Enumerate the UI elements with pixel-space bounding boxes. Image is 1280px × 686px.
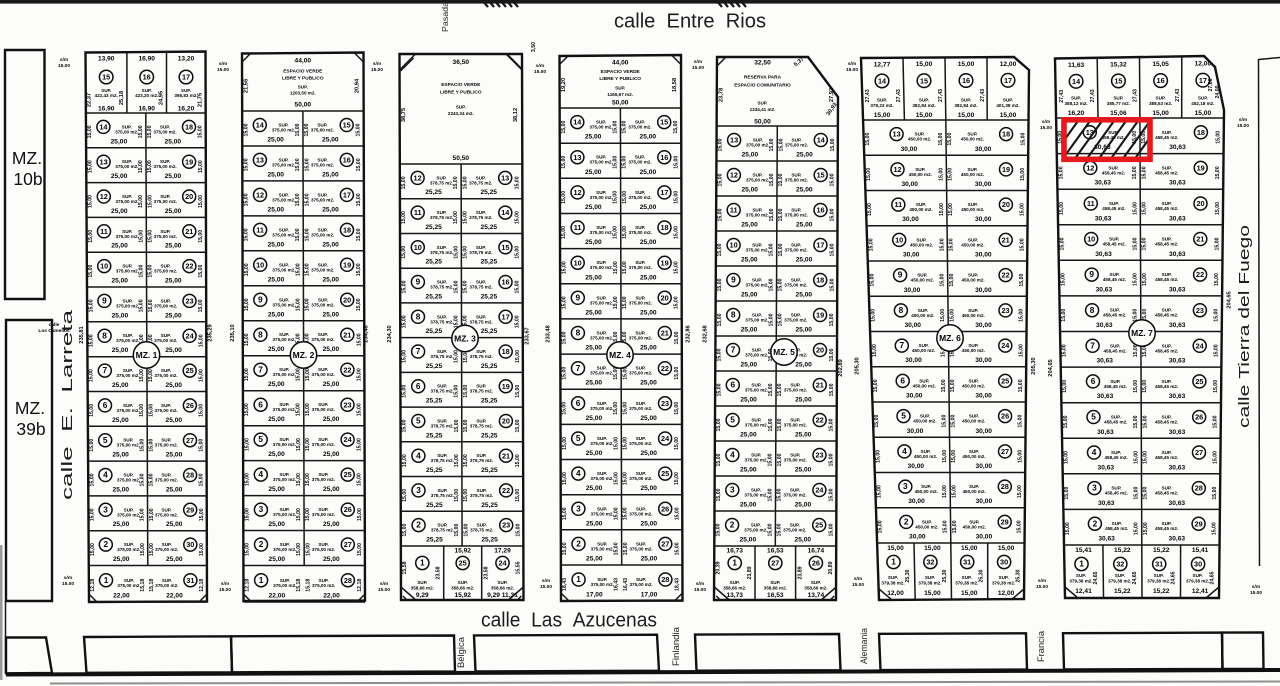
svg-text:SUP.: SUP. <box>919 98 929 103</box>
svg-text:15,92: 15,92 <box>454 592 471 599</box>
svg-text:25,00: 25,00 <box>586 415 603 422</box>
svg-text:17: 17 <box>182 73 190 82</box>
svg-text:375,00 m2.: 375,00 m2. <box>272 197 295 202</box>
svg-text:22,37: 22,37 <box>87 93 93 107</box>
svg-text:15,00: 15,00 <box>1143 486 1149 499</box>
svg-text:15,00: 15,00 <box>916 112 933 119</box>
svg-text:15,00: 15,00 <box>89 473 95 486</box>
svg-text:15,00: 15,00 <box>514 176 520 189</box>
svg-text:12,00: 12,00 <box>1195 61 1212 68</box>
svg-text:16,53: 16,53 <box>767 592 784 599</box>
svg-text:15,00: 15,00 <box>304 158 310 171</box>
svg-text:15,00: 15,00 <box>778 313 784 326</box>
svg-text:15,00: 15,00 <box>1018 414 1024 427</box>
svg-text:22,00: 22,00 <box>269 593 286 600</box>
svg-text:15,00: 15,00 <box>562 507 568 520</box>
svg-text:375,00 m2.: 375,00 m2. <box>272 337 295 342</box>
svg-text:375,00 m2.: 375,00 m2. <box>154 338 177 343</box>
svg-text:15,00: 15,00 <box>88 299 94 312</box>
svg-text:13,74: 13,74 <box>808 592 825 599</box>
svg-text:24,95: 24,95 <box>159 91 165 105</box>
svg-text:28: 28 <box>344 576 352 585</box>
svg-text:378,75 m2.: 378,75 m2. <box>431 458 454 463</box>
svg-text:SUP.: SUP. <box>877 98 887 103</box>
svg-text:27,43: 27,43 <box>938 89 944 102</box>
svg-text:s/m: s/m <box>536 63 544 69</box>
svg-text:25,00: 25,00 <box>741 362 758 369</box>
svg-text:24,65: 24,65 <box>1171 571 1177 584</box>
svg-text:15: 15 <box>102 73 110 82</box>
svg-text:13: 13 <box>573 153 581 162</box>
svg-text:18: 18 <box>660 223 668 232</box>
svg-text:15,00: 15,00 <box>622 261 628 274</box>
svg-text:25,00: 25,00 <box>796 257 813 264</box>
svg-text:25,00: 25,00 <box>640 345 657 352</box>
svg-text:25,25: 25,25 <box>481 363 498 370</box>
svg-text:375,00 m2.: 375,00 m2. <box>784 458 807 463</box>
svg-text:7: 7 <box>576 363 581 373</box>
svg-text:15,00: 15,00 <box>939 238 945 251</box>
svg-text:375,00 m2.: 375,00 m2. <box>311 197 334 202</box>
svg-text:15,00: 15,00 <box>562 402 568 415</box>
svg-text:15,00: 15,00 <box>139 473 145 486</box>
svg-text:15,00: 15,00 <box>199 508 205 521</box>
svg-text:24,00: 24,00 <box>1215 85 1221 98</box>
svg-text:30,63: 30,63 <box>1169 215 1186 222</box>
svg-text:450,00 m2.: 450,00 m2. <box>911 278 934 283</box>
svg-text:11: 11 <box>894 200 902 209</box>
svg-text:458,45 m2.: 458,45 m2. <box>1104 384 1127 389</box>
svg-text:375,00 m2.: 375,00 m2. <box>745 283 768 288</box>
svg-text:ESPACIO COMUNITARIO: ESPACIO COMUNITARIO <box>734 83 791 89</box>
svg-text:LIBRE Y PUBLICO: LIBRE Y PUBLICO <box>282 76 324 82</box>
svg-text:15,00: 15,00 <box>1019 273 1025 286</box>
svg-text:16: 16 <box>501 278 509 287</box>
svg-text:21: 21 <box>816 381 824 390</box>
svg-text:1: 1 <box>891 557 896 567</box>
svg-text:15,00: 15,00 <box>515 523 521 536</box>
svg-text:15,00: 15,00 <box>198 299 204 312</box>
svg-text:375,00 m2.: 375,00 m2. <box>311 128 334 133</box>
svg-text:378,75 m2.: 378,75 m2. <box>430 319 453 324</box>
svg-text:378,75 m2.: 378,75 m2. <box>431 493 454 498</box>
svg-text:30,00: 30,00 <box>976 463 993 470</box>
svg-text:458,45 m2.: 458,45 m2. <box>1105 491 1128 496</box>
svg-text:9: 9 <box>731 275 736 285</box>
svg-text:375,00 m2.: 375,00 m2. <box>312 407 335 412</box>
svg-text:20: 20 <box>1002 200 1010 209</box>
svg-text:379,38 m2.: 379,38 m2. <box>881 581 904 586</box>
svg-text:375,00 m2.: 375,00 m2. <box>272 302 295 307</box>
svg-text:15,00: 15,00 <box>244 193 250 206</box>
svg-text:15,00: 15,00 <box>952 520 958 533</box>
svg-text:23: 23 <box>185 297 193 306</box>
svg-text:375,00 m2.: 375,00 m2. <box>272 128 295 133</box>
svg-text:30,63: 30,63 <box>1096 322 1113 329</box>
svg-text:458,45 m2.: 458,45 m2. <box>1155 242 1178 247</box>
svg-text:15,00: 15,00 <box>716 383 722 396</box>
svg-text:234,48: 234,48 <box>364 325 370 342</box>
svg-text:15,00: 15,00 <box>198 230 204 243</box>
svg-text:15,00: 15,00 <box>1213 344 1219 357</box>
svg-text:458,45 m2.: 458,45 m2. <box>1155 135 1178 140</box>
svg-text:15,00: 15,00 <box>623 472 629 485</box>
svg-text:15,00: 15,00 <box>1018 344 1024 357</box>
svg-text:15,00: 15,00 <box>865 132 871 145</box>
svg-text:23: 23 <box>815 451 823 460</box>
svg-text:375,00 m2.: 375,00 m2. <box>629 265 652 270</box>
svg-text:15,00: 15,00 <box>244 438 250 451</box>
svg-text:378,75 m2.: 378,75 m2. <box>430 250 453 255</box>
svg-text:15,00: 15,00 <box>613 261 619 274</box>
svg-text:15,00: 15,00 <box>942 485 948 498</box>
svg-text:375,00 m2.: 375,00 m2. <box>273 372 296 377</box>
svg-text:12: 12 <box>1086 164 1094 173</box>
svg-text:19: 19 <box>1002 165 1010 174</box>
svg-text:15,00: 15,00 <box>357 473 363 486</box>
svg-text:375,00 m2.: 375,00 m2. <box>629 441 652 446</box>
svg-text:15,00: 15,00 <box>402 489 408 502</box>
svg-text:18: 18 <box>185 123 193 132</box>
svg-text:2243,34 m2.: 2243,34 m2. <box>448 111 474 116</box>
svg-text:27,43: 27,43 <box>865 89 871 102</box>
svg-text:14: 14 <box>1072 77 1081 86</box>
svg-text:3: 3 <box>903 481 908 491</box>
svg-text:24: 24 <box>186 331 195 340</box>
svg-text:25,00: 25,00 <box>586 485 603 492</box>
svg-text:15,00: 15,00 <box>1152 110 1169 117</box>
svg-text:30,00: 30,00 <box>905 357 922 364</box>
svg-text:375,00 m2.: 375,00 m2. <box>273 477 296 482</box>
svg-text:15,00: 15,00 <box>402 385 408 398</box>
svg-text:15,00: 15,00 <box>140 543 146 556</box>
svg-text:15,00: 15,00 <box>89 404 95 417</box>
svg-text:25,00: 25,00 <box>111 138 128 145</box>
svg-text:15,00: 15,00 <box>305 543 311 556</box>
svg-text:15,00: 15,00 <box>951 414 957 427</box>
svg-text:375,00 m2.: 375,00 m2. <box>117 512 140 517</box>
svg-text:15,00: 15,00 <box>1142 237 1148 250</box>
svg-text:SUP.: SUP. <box>417 580 427 585</box>
svg-text:379,38 m2.: 379,38 m2. <box>955 581 978 586</box>
svg-text:25,00: 25,00 <box>267 137 284 144</box>
svg-text:SUP.: SUP. <box>888 575 898 580</box>
svg-text:15,00: 15,00 <box>829 383 835 396</box>
svg-text:25,25: 25,25 <box>426 293 443 300</box>
svg-text:6: 6 <box>416 381 421 391</box>
svg-text:14: 14 <box>501 208 510 217</box>
svg-text:378,75 m2.: 378,75 m2. <box>470 528 493 533</box>
svg-text:15,00: 15,00 <box>870 273 876 286</box>
svg-text:25,00: 25,00 <box>322 241 339 248</box>
svg-text:7: 7 <box>416 346 421 356</box>
svg-text:30,63: 30,63 <box>1169 251 1186 258</box>
svg-text:27,43: 27,43 <box>1090 89 1096 102</box>
svg-text:450,00 m2.: 450,00 m2. <box>914 454 937 459</box>
svg-text:15,00: 15,00 <box>674 437 680 450</box>
svg-text:15,00: 15,00 <box>562 367 568 380</box>
svg-text:378,75 m2.: 378,75 m2. <box>469 180 492 185</box>
svg-text:15,00: 15,00 <box>1019 238 1025 251</box>
svg-text:15,00: 15,00 <box>453 246 459 259</box>
svg-text:SUP.: SUP. <box>1198 96 1208 101</box>
svg-text:25,00: 25,00 <box>166 417 183 424</box>
svg-text:30,63: 30,63 <box>1169 144 1186 151</box>
svg-text:15,00: 15,00 <box>88 230 94 243</box>
svg-text:10: 10 <box>256 260 264 269</box>
svg-text:25,00: 25,00 <box>741 187 758 194</box>
svg-text:15,00: 15,00 <box>613 437 619 450</box>
svg-text:Finlandia: Finlandia <box>671 627 681 666</box>
svg-text:375,00 m2.: 375,00 m2. <box>153 129 176 134</box>
svg-text:25,25: 25,25 <box>425 189 442 196</box>
svg-text:28: 28 <box>1195 484 1203 493</box>
svg-text:25,00: 25,00 <box>111 243 128 250</box>
svg-text:10: 10 <box>414 243 422 252</box>
svg-text:30,63: 30,63 <box>1098 536 1115 543</box>
svg-text:30,00: 30,00 <box>907 428 924 435</box>
svg-text:375,00 m2.: 375,00 m2. <box>746 248 769 253</box>
svg-text:25: 25 <box>1195 377 1203 386</box>
svg-text:15,00: 15,00 <box>768 418 774 431</box>
svg-text:375,00 m2.: 375,00 m2. <box>154 373 177 378</box>
svg-text:15,00: 15,00 <box>402 350 408 363</box>
svg-text:s/m: s/m <box>380 581 388 587</box>
svg-text:15,00: 15,00 <box>829 453 835 466</box>
svg-text:18,43: 18,43 <box>562 578 568 591</box>
svg-text:25,25: 25,25 <box>425 224 442 231</box>
svg-text:10: 10 <box>574 258 582 267</box>
svg-text:375,00 m2.: 375,00 m2. <box>785 143 808 148</box>
svg-text:378,75 m2.: 378,75 m2. <box>469 285 492 290</box>
svg-text:24: 24 <box>661 434 670 443</box>
svg-text:15,00: 15,00 <box>829 348 835 361</box>
svg-text:25,00: 25,00 <box>742 152 759 159</box>
svg-text:30,63: 30,63 <box>1169 464 1186 471</box>
svg-text:15,00: 15,00 <box>357 403 363 416</box>
svg-text:15,00: 15,00 <box>613 156 619 169</box>
svg-text:358,66 m2.: 358,66 m2. <box>451 586 474 591</box>
svg-text:30: 30 <box>1000 558 1008 567</box>
svg-text:15,00: 15,00 <box>612 120 618 133</box>
svg-text:25,00: 25,00 <box>322 171 339 178</box>
svg-text:7: 7 <box>731 345 736 355</box>
svg-text:15,00: 15,00 <box>463 419 469 432</box>
svg-text:10: 10 <box>895 236 903 245</box>
svg-text:15,00: 15,00 <box>1064 451 1070 464</box>
svg-text:29: 29 <box>186 505 194 514</box>
svg-text:15,00: 15,00 <box>90 543 96 556</box>
svg-text:20: 20 <box>502 417 510 426</box>
svg-text:SUP.: SUP. <box>961 98 971 103</box>
svg-text:15,00: 15,00 <box>515 419 521 432</box>
svg-text:15,00: 15,00 <box>829 278 835 291</box>
svg-text:25,00: 25,00 <box>640 239 657 246</box>
svg-text:15,00: 15,00 <box>1214 237 1220 250</box>
svg-text:375,00 m2.: 375,00 m2. <box>590 300 613 305</box>
svg-text:26: 26 <box>344 505 352 514</box>
svg-text:458,45 m2.: 458,45 m2. <box>1103 242 1126 247</box>
svg-text:15,00: 15,00 <box>948 203 954 216</box>
svg-text:378,75 m2.: 378,75 m2. <box>470 389 493 394</box>
svg-text:378,75 m2.: 378,75 m2. <box>470 424 493 429</box>
svg-text:15,00: 15,00 <box>90 508 96 521</box>
svg-text:28: 28 <box>1001 482 1009 491</box>
svg-text:375,00 m2.: 375,00 m2. <box>154 303 177 308</box>
svg-text:30,63: 30,63 <box>1097 429 1114 436</box>
svg-text:15,00: 15,00 <box>402 419 408 432</box>
svg-text:24,65: 24,65 <box>1210 571 1216 584</box>
svg-text:SUP.: SUP. <box>1003 98 1013 103</box>
svg-text:15,32: 15,32 <box>1110 61 1127 68</box>
svg-text:379,38 m2.: 379,38 m2. <box>1069 579 1092 584</box>
svg-text:17: 17 <box>660 188 668 197</box>
svg-text:25,00: 25,00 <box>165 243 182 250</box>
svg-text:375,00 m2.: 375,00 m2. <box>117 478 140 483</box>
svg-text:18: 18 <box>343 226 351 235</box>
svg-text:19: 19 <box>343 260 351 269</box>
svg-text:358,66 m2.: 358,66 m2. <box>411 586 434 591</box>
svg-text:234,30: 234,30 <box>387 325 393 342</box>
svg-text:202,89: 202,89 <box>838 359 844 376</box>
svg-text:25,00: 25,00 <box>268 416 285 423</box>
svg-text:15,00: 15,00 <box>828 523 834 536</box>
svg-text:15: 15 <box>1114 77 1122 86</box>
svg-text:15,00: 15,00 <box>769 138 775 151</box>
svg-text:11: 11 <box>414 208 422 217</box>
svg-text:20: 20 <box>185 192 193 201</box>
svg-text:SUP.: SUP. <box>1071 96 1081 101</box>
svg-text:15,00: 15,00 <box>674 402 680 415</box>
svg-text:25,00: 25,00 <box>640 274 657 281</box>
svg-text:25,00: 25,00 <box>640 204 657 211</box>
svg-text:15.00: 15.00 <box>1237 123 1249 129</box>
svg-text:30,00: 30,00 <box>975 216 992 223</box>
svg-text:458,45 m2.: 458,45 m2. <box>1155 348 1178 353</box>
svg-text:15,00: 15,00 <box>716 453 722 466</box>
svg-text:15,00: 15,00 <box>1142 380 1148 393</box>
svg-text:26: 26 <box>661 504 669 513</box>
svg-text:25,00: 25,00 <box>586 520 603 527</box>
svg-text:13,73: 13,73 <box>726 592 743 599</box>
svg-text:25,00: 25,00 <box>640 309 657 316</box>
svg-text:15,00: 15,00 <box>1018 379 1024 392</box>
svg-text:13,90: 13,90 <box>98 56 115 63</box>
svg-text:25,00: 25,00 <box>585 134 602 141</box>
svg-text:20,89: 20,89 <box>828 561 834 574</box>
svg-text:SUP.: SUP. <box>811 580 821 585</box>
svg-text:30,00: 30,00 <box>976 534 993 541</box>
svg-text:25,00: 25,00 <box>795 327 812 334</box>
svg-text:30,00: 30,00 <box>975 252 992 259</box>
svg-text:15,18: 15,18 <box>296 579 302 592</box>
svg-text:385,77 m2.: 385,77 m2. <box>1107 101 1130 106</box>
svg-text:15,00: 15,00 <box>1017 450 1023 463</box>
svg-text:450,00 m2.: 450,00 m2. <box>912 348 935 353</box>
svg-text:25,00: 25,00 <box>640 134 657 141</box>
svg-text:358,66 m2.: 358,66 m2. <box>764 586 787 591</box>
svg-text:27: 27 <box>1001 447 1009 456</box>
svg-text:25,00: 25,00 <box>268 311 285 318</box>
svg-text:23,58: 23,58 <box>436 566 442 579</box>
svg-text:450,00 m2.: 450,00 m2. <box>915 524 938 529</box>
svg-text:375,00 m2.: 375,00 m2. <box>273 583 296 588</box>
svg-text:31: 31 <box>186 576 194 585</box>
svg-text:15,00: 15,00 <box>1065 522 1071 535</box>
svg-text:15,00: 15,00 <box>149 439 155 452</box>
svg-text:25,00: 25,00 <box>740 432 757 439</box>
svg-text:25,00: 25,00 <box>165 382 182 389</box>
svg-text:25,00: 25,00 <box>585 345 602 352</box>
svg-text:375,00 m2.: 375,00 m2. <box>590 511 613 516</box>
svg-text:15,00: 15,00 <box>305 298 311 311</box>
svg-text:25,00: 25,00 <box>640 485 657 492</box>
svg-text:375,00 m2.: 375,00 m2. <box>154 408 177 413</box>
svg-text:21: 21 <box>343 330 351 339</box>
svg-text:15,00: 15,00 <box>304 228 310 241</box>
svg-text:30,00: 30,00 <box>909 534 926 541</box>
svg-text:25,00: 25,00 <box>323 381 340 388</box>
svg-text:15,00: 15,00 <box>295 123 301 136</box>
svg-text:378,75 m2.: 378,75 m2. <box>431 528 454 533</box>
svg-text:450,00 m2.: 450,00 m2. <box>915 489 938 494</box>
svg-text:15,00: 15,00 <box>941 379 947 392</box>
svg-text:15,00: 15,00 <box>622 226 628 239</box>
svg-text:6: 6 <box>730 380 735 390</box>
svg-text:17: 17 <box>502 312 510 321</box>
svg-text:15,00: 15,00 <box>940 273 946 286</box>
svg-text:15,00: 15,00 <box>88 264 94 277</box>
svg-text:15,00: 15,00 <box>878 520 884 533</box>
svg-text:450,00 m2.: 450,00 m2. <box>962 313 985 318</box>
svg-text:23: 23 <box>502 521 510 530</box>
svg-text:MZ. 5: MZ. 5 <box>773 347 795 357</box>
svg-text:1: 1 <box>732 558 737 568</box>
svg-text:2: 2 <box>576 539 581 549</box>
svg-text:SUP.: SUP. <box>962 575 972 580</box>
svg-text:11: 11 <box>1087 199 1095 208</box>
svg-text:30,00: 30,00 <box>975 146 992 153</box>
svg-text:15,41: 15,41 <box>1075 547 1092 554</box>
svg-text:379,38 m2.: 379,38 m2. <box>1186 579 1209 584</box>
svg-text:25,00: 25,00 <box>268 381 285 388</box>
svg-text:25,00: 25,00 <box>323 346 340 353</box>
svg-text:15,00: 15,00 <box>998 545 1015 552</box>
svg-text:7: 7 <box>258 364 263 374</box>
svg-text:11: 11 <box>574 223 582 232</box>
svg-text:375,00 m2.: 375,00 m2. <box>629 582 652 587</box>
svg-text:15,00: 15,00 <box>768 488 774 501</box>
svg-text:17,00: 17,00 <box>586 592 603 599</box>
svg-text:30,00: 30,00 <box>976 498 993 505</box>
svg-text:s/m: s/m <box>542 578 550 584</box>
svg-text:15,00: 15,00 <box>1143 522 1149 535</box>
svg-text:15,00: 15,00 <box>295 228 301 241</box>
svg-text:423,20 m2.: 423,20 m2. <box>135 93 158 98</box>
svg-text:25,00: 25,00 <box>741 257 758 264</box>
svg-text:25,00: 25,00 <box>322 206 339 213</box>
svg-text:15,00: 15,00 <box>401 211 407 224</box>
svg-text:6: 6 <box>103 400 108 410</box>
svg-text:15,00: 15,00 <box>716 488 722 501</box>
svg-text:15,00: 15,00 <box>867 203 873 216</box>
svg-text:375,00 m2.: 375,00 m2. <box>589 125 612 130</box>
svg-text:23,78: 23,78 <box>719 88 725 102</box>
svg-text:25,00: 25,00 <box>795 397 812 404</box>
svg-text:378,23 m2.: 378,23 m2. <box>870 103 893 108</box>
svg-text:15,00: 15,00 <box>924 545 941 552</box>
svg-text:15,22: 15,22 <box>1153 547 1170 554</box>
